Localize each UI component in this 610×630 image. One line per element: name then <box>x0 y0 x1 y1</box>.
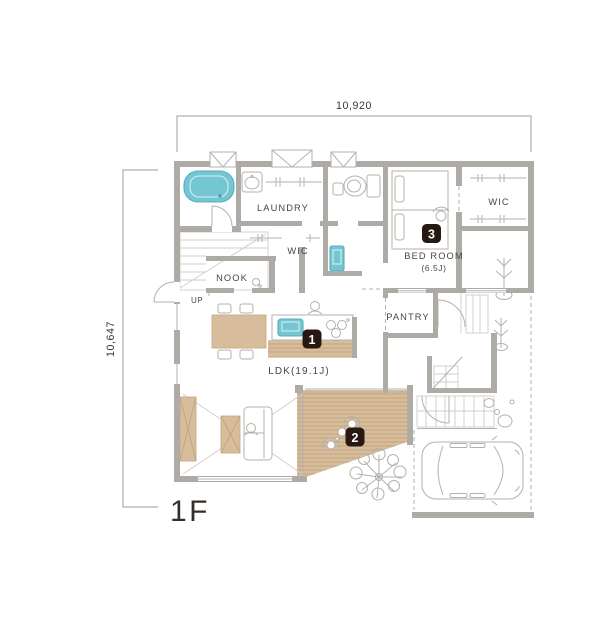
car <box>422 436 523 505</box>
dimension-left-value: 10,647 <box>105 321 117 357</box>
floor-label: 1F <box>170 495 210 528</box>
dining-chair <box>218 350 231 359</box>
label-wic-bedroom: WIC <box>488 197 509 207</box>
wic-hall-rods <box>250 234 320 242</box>
dining-set <box>212 304 266 359</box>
label-bedroom: BED ROOM <box>404 251 463 261</box>
laundry-fixtures <box>242 172 322 192</box>
approach-plants <box>484 258 514 427</box>
marker-3[interactable]: 3 <box>422 224 441 243</box>
sofa <box>244 407 272 460</box>
marker-1-number: 1 <box>309 333 316 347</box>
high-windows <box>210 150 356 167</box>
nook-cup <box>253 279 262 288</box>
dining-table <box>212 315 266 348</box>
label-nook: NOOK <box>216 273 248 283</box>
dining-chair <box>240 304 253 313</box>
dimension-top-value: 10,920 <box>336 100 372 112</box>
dimension-left: 10,647 <box>105 170 158 507</box>
marker-3-number: 3 <box>428 227 435 241</box>
label-ldk: LDK(19.1J) <box>268 366 330 377</box>
shoe-cabinet <box>466 295 488 333</box>
toilet-hand-sink <box>333 183 343 195</box>
dining-chair <box>240 350 253 359</box>
label-laundry: LAUNDRY <box>257 203 309 213</box>
marker-1[interactable]: 1 <box>303 330 322 349</box>
side-door <box>154 282 174 302</box>
dining-chair <box>218 304 231 313</box>
stepping-stones <box>484 399 514 428</box>
label-wic-hall: WIC <box>287 246 308 256</box>
bathtub <box>184 171 234 202</box>
living-area <box>180 394 302 474</box>
dimension-top: 10,920 <box>177 100 531 152</box>
label-up: UP <box>191 296 203 305</box>
staircase <box>180 232 268 296</box>
person-kitchen <box>308 302 322 315</box>
hanging-rod <box>266 177 322 187</box>
marker-2[interactable]: 2 <box>346 428 365 447</box>
marker-2-number: 2 <box>352 431 359 445</box>
kitchen-island <box>268 302 355 358</box>
bathroom-door <box>212 206 232 232</box>
floor-plan-svg: 10,920 10,647 <box>0 0 610 630</box>
toilet <box>333 175 380 197</box>
label-pantry: PANTRY <box>386 312 429 322</box>
label-bedroom-size: (6.5J) <box>421 263 446 273</box>
